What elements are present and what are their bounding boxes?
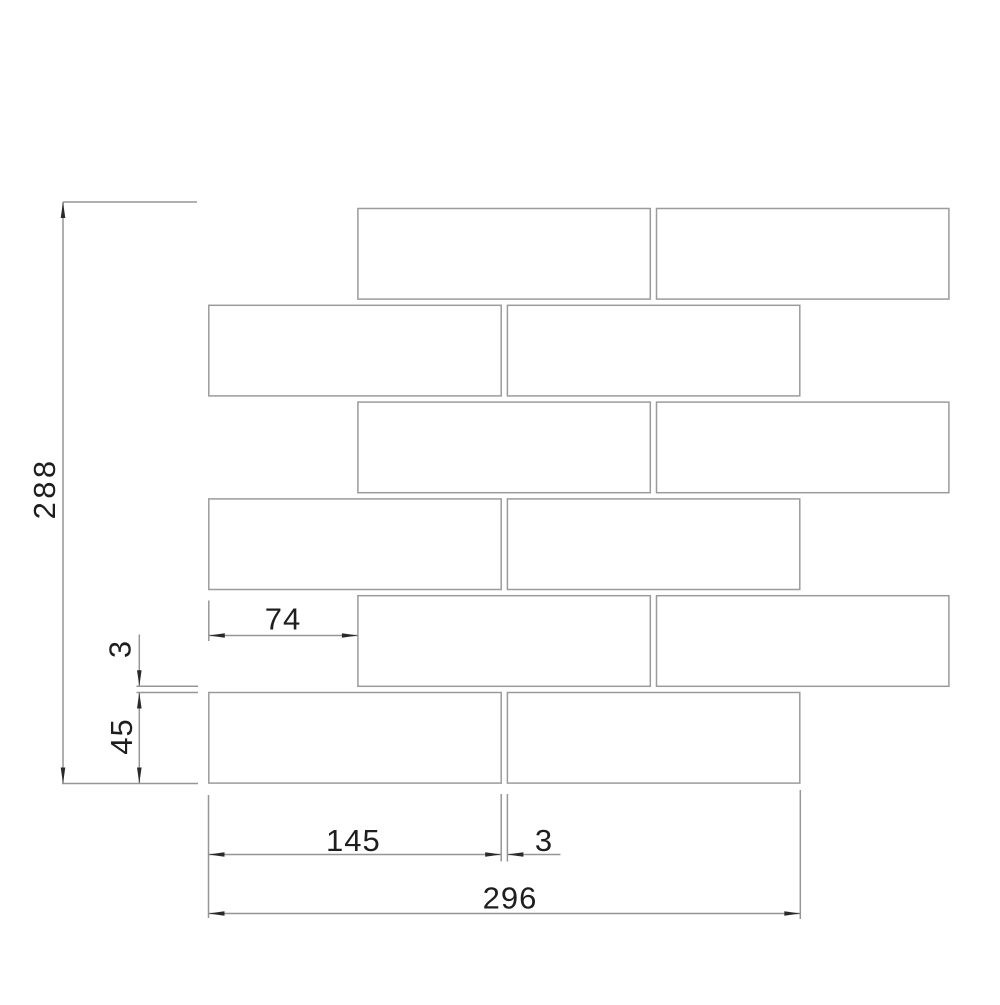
svg-text:3: 3	[103, 640, 138, 658]
svg-text:288: 288	[27, 457, 62, 519]
svg-text:3: 3	[535, 823, 553, 858]
svg-text:74: 74	[265, 602, 301, 637]
svg-text:45: 45	[104, 718, 139, 754]
svg-text:296: 296	[483, 881, 538, 916]
svg-text:145: 145	[326, 823, 381, 858]
